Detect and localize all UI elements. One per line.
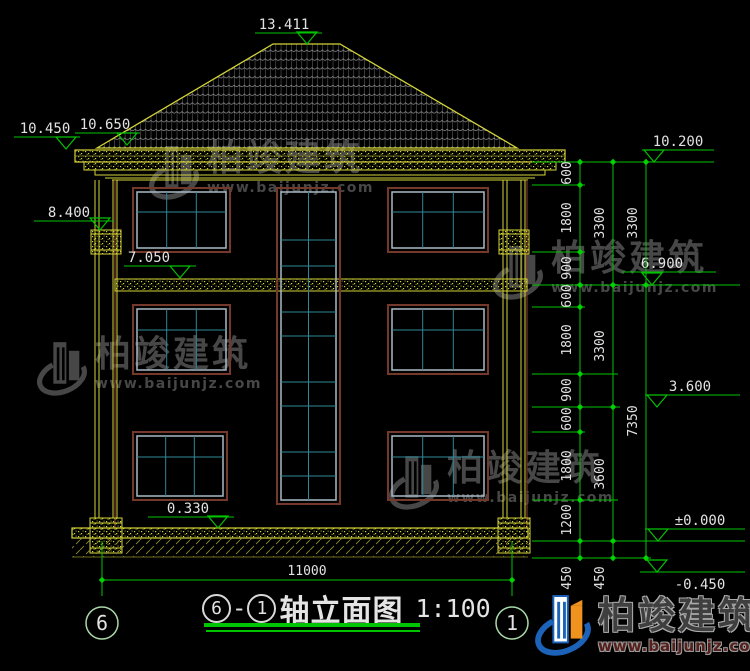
footer-logo-brand: 柏竣建筑: [598, 597, 750, 636]
dim-inner-8: 1200: [560, 504, 575, 535]
footer-logo-icon: [534, 590, 592, 662]
level-plinth: 0.330: [167, 501, 209, 517]
level-ridge: 13.411: [259, 17, 310, 33]
level-capital: 8.400: [48, 205, 90, 221]
dim-inner-6: 600: [560, 407, 575, 430]
elevation-drawing: 13.411 10.650 10.450 8.400 7.050 0.330 1…: [0, 0, 750, 671]
axis-bubble-right: 1: [506, 611, 518, 635]
pilaster-left: [90, 180, 122, 553]
footer-logo-url: www.baijunjz.com: [598, 637, 750, 655]
title-axis-start: 6: [202, 594, 231, 623]
window-floor3-right: [388, 188, 488, 252]
dim-inner-4: 1800: [560, 324, 575, 355]
level-band: 7.050: [128, 250, 170, 266]
title-scale: 1:100: [415, 594, 490, 623]
dim-outer-0: 3300: [626, 207, 641, 238]
title-underline: [204, 623, 420, 627]
stairwell-window-strip: [277, 188, 340, 504]
dim-inner-1: 1800: [560, 202, 575, 233]
window-floor2-left: [133, 305, 230, 374]
title-underline-thin: [206, 630, 420, 632]
dim-inner-0: 600: [560, 161, 575, 184]
level-right-zero: ±0.000: [675, 513, 726, 529]
footer-logo: 柏竣建筑 www.baijunjz.com: [534, 590, 750, 662]
window-floor2-right: [388, 305, 488, 374]
level-right-floor3: 6.900: [641, 256, 683, 272]
title-axis-end: 1: [247, 594, 276, 623]
dim-inner-3: 600: [560, 284, 575, 307]
dim-chain-inner-labels: 600 1800 900 600 1800 900 600 1800 1200 …: [560, 161, 575, 589]
dim-inner-7: 1800: [560, 450, 575, 481]
level-markers-right: 10.200 6.900 3.600 ±0.000 -0.450: [622, 134, 745, 593]
axis-bubble-left: 6: [96, 611, 108, 635]
dim-overall-width: 11000: [287, 564, 326, 579]
dim-mid-2: 3600: [593, 458, 608, 489]
level-eave-upper: 10.650: [80, 117, 131, 133]
title-separator: -: [232, 594, 246, 622]
dim-inner-9: 450: [560, 566, 575, 589]
dim-mid-0: 3300: [593, 207, 608, 238]
dim-mid-1: 3300: [593, 330, 608, 361]
dim-inner-2: 900: [560, 256, 575, 279]
dim-chain-middle-labels: 3300 3300 3600 450: [593, 207, 608, 589]
dim-chain-outer-labels: 3300 7350: [626, 207, 641, 436]
level-right-floor2: 3.600: [669, 379, 711, 395]
level-eave: 10.450: [20, 121, 71, 137]
dim-mid-3: 450: [593, 566, 608, 589]
window-floor3-left: [133, 188, 230, 252]
eaves-cornice: [75, 150, 565, 180]
level-right-top: 10.200: [653, 134, 704, 150]
pilaster-right: [498, 180, 530, 553]
window-floor1-left: [133, 432, 227, 500]
cad-canvas: 柏竣建筑 www.baijunjz.com 柏竣建筑 www.baijunjz.…: [0, 0, 750, 671]
hip-roof: [97, 44, 517, 148]
dim-inner-5: 900: [560, 378, 575, 401]
ground-plinth: [72, 528, 528, 557]
dim-outer-1: 7350: [626, 405, 641, 436]
window-floor1-right: [388, 432, 488, 500]
